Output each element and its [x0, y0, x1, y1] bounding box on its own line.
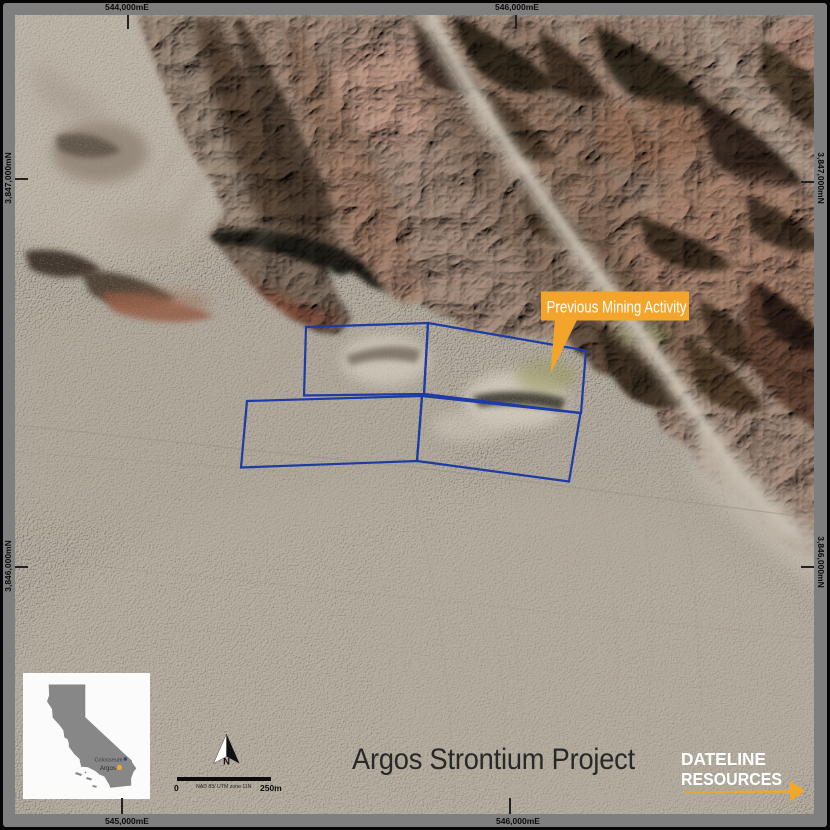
svg-text:Argos: Argos — [100, 765, 116, 772]
svg-text:N: N — [223, 757, 230, 768]
svg-text:Colosseum: Colosseum — [95, 757, 123, 763]
svg-text:Previous Mining Activity: Previous Mining Activity — [547, 299, 688, 317]
svg-text:DATELINE: DATELINE — [681, 749, 766, 769]
